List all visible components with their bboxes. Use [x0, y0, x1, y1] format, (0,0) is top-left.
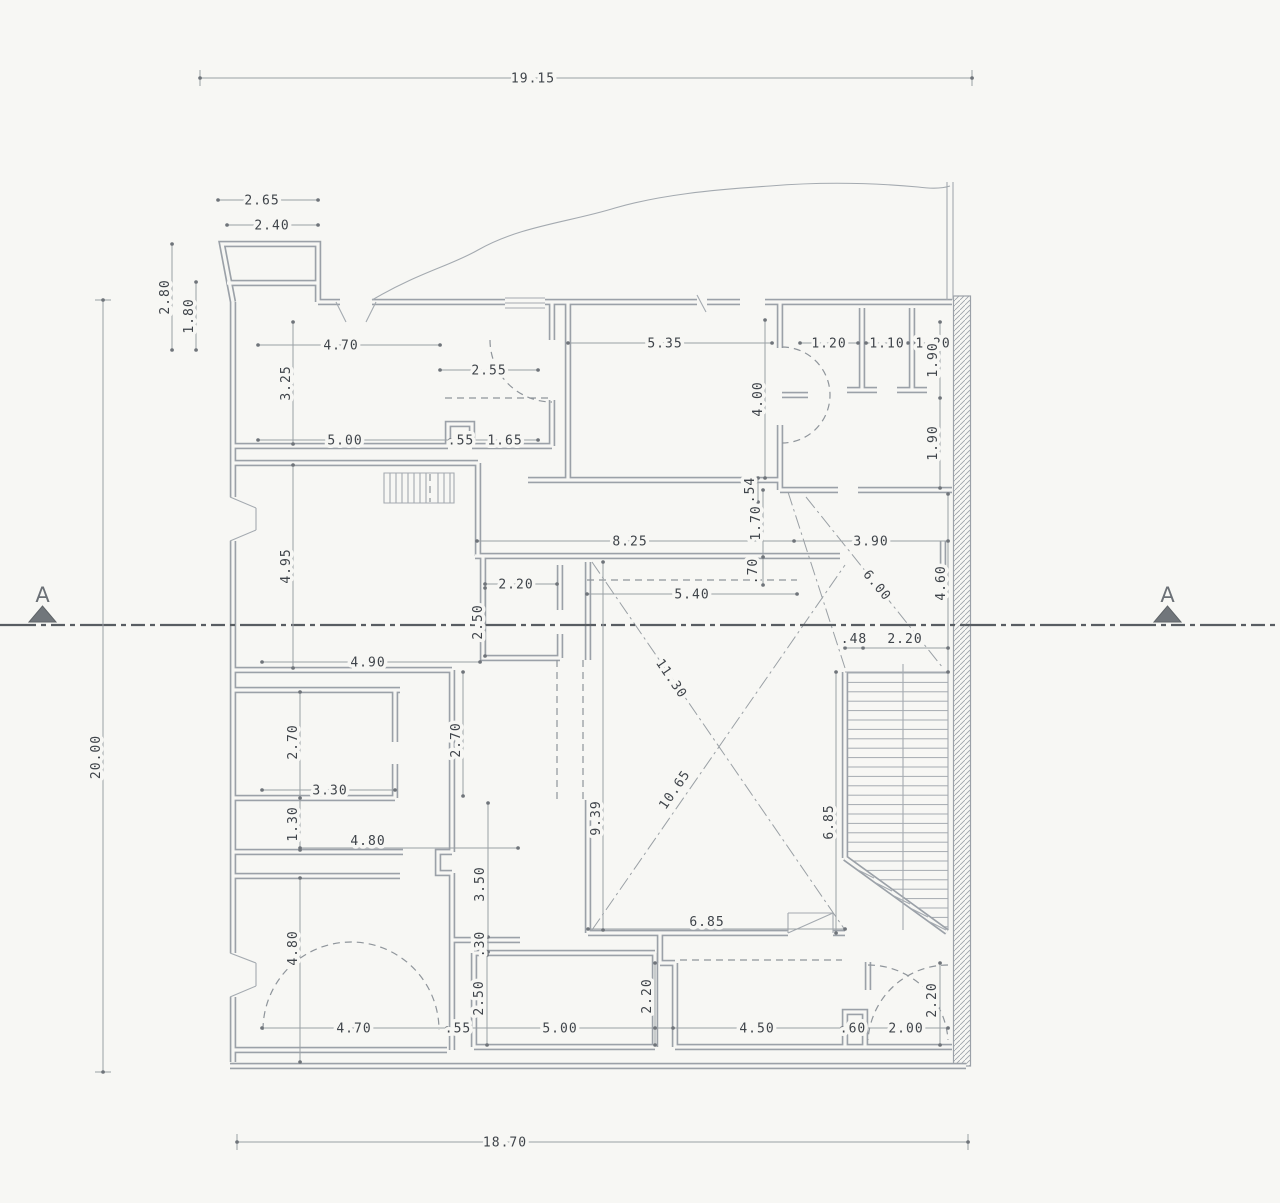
dim-room1-left: 3.25	[279, 365, 294, 400]
dim-room5-h: 2.70	[286, 724, 301, 759]
dim-cab-h: 2.50	[471, 604, 486, 639]
dim-hall-step: .70	[746, 558, 761, 584]
dim-stair-hall: 4.60	[934, 565, 949, 600]
dim-stair-run: 6.85	[822, 804, 837, 839]
dim-bottom-b: .55	[445, 1022, 471, 1037]
floor-plan: 19.15 18.70 2.65 2.40 4.70 2.55 5.00 .55…	[0, 0, 1280, 1203]
section-label-right: A	[1160, 583, 1175, 607]
dim-annex-h-outer: 2.80	[158, 279, 173, 314]
dimension-lines	[95, 70, 972, 1150]
dim-room7-h: 4.80	[286, 930, 301, 965]
section-label-left: A	[35, 583, 50, 607]
dim-mid-wall: .30	[473, 931, 488, 957]
dim-court-diag-b: 10.65	[656, 768, 693, 813]
dim-mid-h: 2.70	[449, 722, 464, 757]
section-marker-right-icon	[1154, 606, 1181, 622]
dim-room4-bottom: 4.90	[350, 656, 385, 671]
dim-room2-right: 4.00	[751, 381, 766, 416]
dim-bottom-e: .60	[840, 1022, 866, 1037]
dim-room1-top: 4.70	[323, 339, 358, 354]
dim-room8-right: 2.20	[640, 978, 655, 1013]
dim-overall-top: 19.15	[511, 72, 555, 87]
dim-hall-diag: 6.00	[860, 567, 894, 604]
dim-overall-left: 20.00	[89, 735, 104, 779]
dim-room1-bottom-a: 5.00	[327, 434, 362, 449]
dim-hall-right: 3.90	[853, 535, 888, 550]
dim-court-top: 5.40	[674, 588, 709, 603]
dim-court-bottom: 6.85	[689, 915, 724, 930]
dim-room1-door: 2.55	[471, 364, 506, 379]
dim-strip-h: 1.30	[286, 806, 301, 841]
dim-room8-left: 2.50	[472, 980, 487, 1015]
dim-court-diag-a: 11.30	[652, 657, 689, 702]
dim-stair-top-b: 2.20	[887, 632, 922, 647]
dim-stair-top-a: .48	[841, 632, 867, 647]
dim-bottom-c: 5.00	[542, 1022, 577, 1037]
dim-room1-bottom-b: .55	[448, 434, 474, 449]
dim-bottom-d: 4.50	[739, 1022, 774, 1037]
dim-room4-left: 4.95	[279, 548, 294, 583]
dim-room9-right: 2.20	[925, 982, 940, 1017]
dim-room3-right-lower: 1.90	[926, 425, 941, 460]
dim-room3-right-upper: 1.90	[926, 342, 941, 377]
dim-bottom-f: 2.00	[888, 1022, 923, 1037]
dim-court-left: 9.39	[589, 800, 604, 835]
dim-bottom-a: 4.70	[336, 1022, 371, 1037]
blueprint-canvas: 19.15 18.70 2.65 2.40 4.70 2.55 5.00 .55…	[0, 0, 1280, 1203]
staircase-treads	[845, 672, 948, 930]
dim-annex-w-outer: 2.65	[244, 194, 279, 209]
dim-room1-bottom-c: 1.65	[487, 434, 522, 449]
dim-room2-top: 5.35	[647, 337, 682, 352]
dim-room3-a: 1.20	[811, 337, 846, 352]
dim-cab-w: 2.20	[498, 578, 533, 593]
dim-annex-h-inner: 1.80	[182, 298, 197, 333]
walls-outer	[222, 244, 966, 1066]
dim-room5-bottom: 3.30	[312, 784, 347, 799]
dim-strip-w: 4.80	[350, 834, 385, 849]
dim-room2-sill: .54	[743, 477, 758, 503]
dim-mid-passage: 3.50	[473, 866, 488, 901]
dim-hall-depth: 1.70	[749, 505, 764, 540]
section-marker-left-icon	[29, 606, 56, 622]
dim-room3-b: 1.10	[869, 337, 904, 352]
right-party-wall	[954, 296, 971, 1066]
dim-overall-bottom: 18.70	[483, 1136, 527, 1151]
dim-hall-width: 8.25	[612, 535, 647, 550]
dim-annex-w-inner: 2.40	[254, 219, 289, 234]
walls-inner	[222, 244, 966, 1066]
